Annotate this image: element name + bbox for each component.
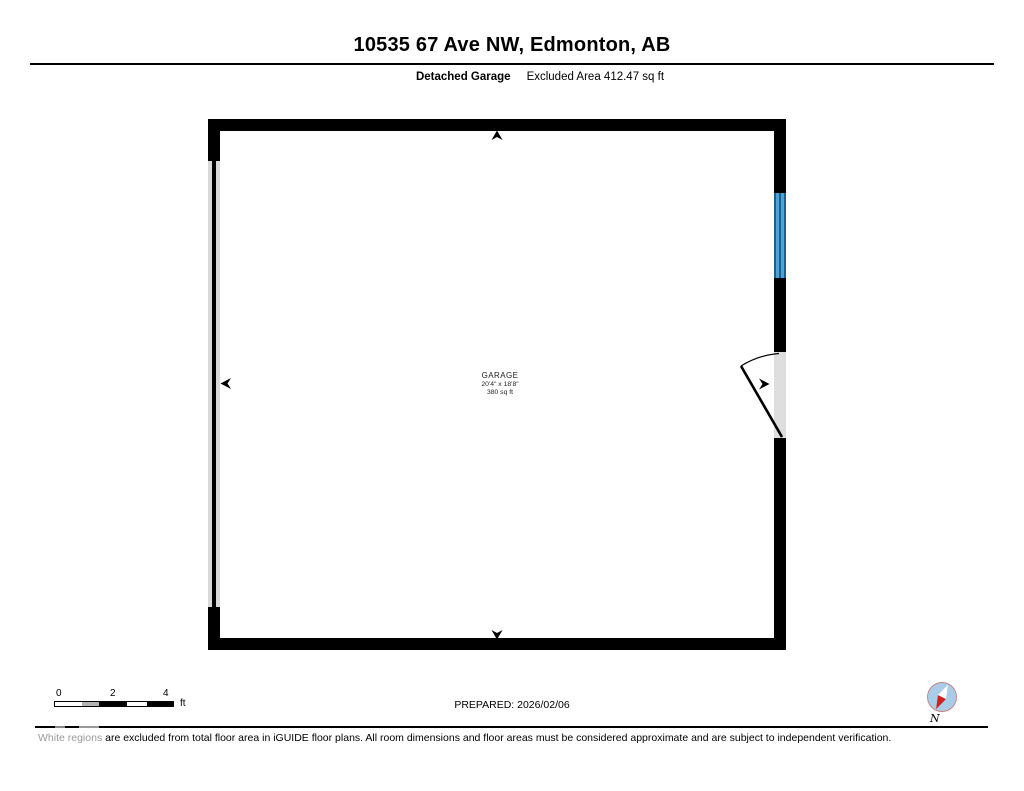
wall-right-upper: [774, 131, 786, 193]
window-pane-line: [779, 193, 781, 278]
floorplan-canvas: GARAGE 20'4" x 18'8" 380 sq ft: [0, 0, 1024, 791]
floorplan-page: 10535 67 Ave NW, Edmonton, AB Detached G…: [0, 0, 1024, 791]
disclaimer-rest: are excluded from total floor area in iG…: [102, 732, 891, 744]
wall-right-middle: [774, 278, 786, 352]
footer-divider: [35, 726, 988, 728]
window-symbol: [774, 193, 786, 278]
room-name: GARAGE: [420, 371, 580, 381]
scale-tick-4: 4: [163, 688, 169, 699]
dimension-arrow-left-icon: [221, 378, 232, 389]
wall-right-lower: [774, 438, 786, 638]
room-label: GARAGE 20'4" x 18'8" 380 sq ft: [420, 371, 580, 398]
compass-icon: N: [923, 678, 963, 726]
wall-left-lower: [208, 608, 220, 638]
door-opening: [774, 352, 786, 438]
disclaimer-highlight: White regions: [38, 732, 102, 744]
scale-tick-0: 0: [56, 688, 62, 699]
room-dimensions: 20'4" x 18'8": [420, 381, 580, 389]
dimension-arrow-right-icon: [759, 379, 770, 390]
disclaimer-text: White regions are excluded from total fl…: [38, 732, 998, 746]
dimension-arrow-up-icon: [492, 131, 503, 141]
prepared-date: PREPARED: 2026/02/06: [0, 699, 1024, 711]
garage-door-panel-lines: [212, 161, 216, 607]
scale-tick-2: 2: [110, 688, 116, 699]
wall-bottom: [208, 638, 786, 650]
garage-door-symbol: [208, 160, 220, 608]
wall-left-upper: [208, 131, 220, 160]
compass-n-label: N: [929, 712, 940, 725]
wall-top: [208, 119, 786, 131]
room-area: 380 sq ft: [420, 389, 580, 397]
